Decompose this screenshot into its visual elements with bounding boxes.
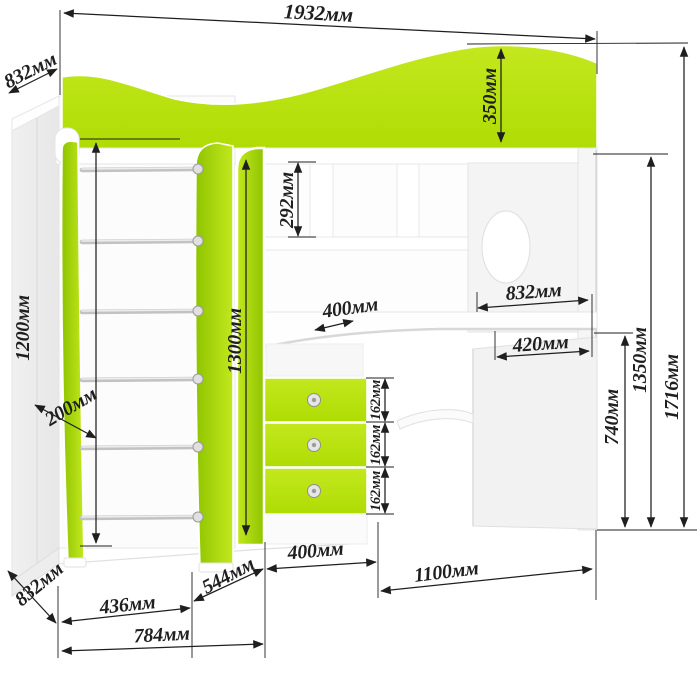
ladder-foot-left — [64, 558, 86, 567]
dim-wardrobe-depth-top-label: 832мм — [0, 48, 60, 93]
dim-ladder-height-label: 1200мм — [12, 295, 34, 361]
dim-bed-platform-height-label: 1350мм — [629, 327, 651, 393]
bed-rail — [62, 46, 597, 150]
cubby-bottom-shelf — [262, 237, 468, 250]
dim-front-panel-height-label: 1300мм — [224, 308, 246, 374]
drawer-knob — [308, 439, 321, 452]
drawer-knob — [308, 394, 321, 407]
dim-bed-rail-height-label: 350мм — [479, 67, 501, 125]
dim-base-front-label: 784мм — [133, 623, 191, 648]
dim-desk-span-label: 1100мм — [413, 557, 480, 587]
cubby-divider — [397, 164, 419, 238]
dim-drawer3-label: 162мм — [368, 471, 384, 511]
drawer-niche — [266, 344, 363, 376]
drawer-unit — [264, 344, 367, 544]
dim-shelf-compartment-label: 292мм — [276, 171, 298, 229]
dim-drawers-span-label: 400мм — [286, 538, 345, 565]
dim-drawers-span-line — [267, 562, 376, 569]
dim-base-left-label: 436мм — [97, 591, 156, 619]
oval-cutout-hole — [482, 211, 530, 283]
dim-desk-depth-label: 832мм — [505, 279, 563, 305]
dim-desk-height-label: 740мм — [601, 388, 623, 445]
dim-drawer2-label: 162мм — [368, 425, 384, 465]
dim-drawer1-label: 162мм — [368, 380, 384, 420]
drawer-knob — [308, 485, 321, 498]
furniture-dimension-diagram: 1932мм 832мм 350мм 292мм 832мм 420мм 171… — [0, 0, 700, 675]
under-desk-corner-shelf — [397, 410, 473, 429]
desk-support-panel — [473, 337, 597, 529]
dim-total-width-label: 1932мм — [283, 0, 353, 27]
dim-desk-return-label: 420мм — [511, 331, 570, 357]
cubby-divider — [310, 164, 333, 238]
oval-cutout-panel — [468, 163, 578, 332]
dim-total-height-label: 1716мм — [661, 354, 683, 420]
dim-desk-span-line — [381, 569, 592, 591]
